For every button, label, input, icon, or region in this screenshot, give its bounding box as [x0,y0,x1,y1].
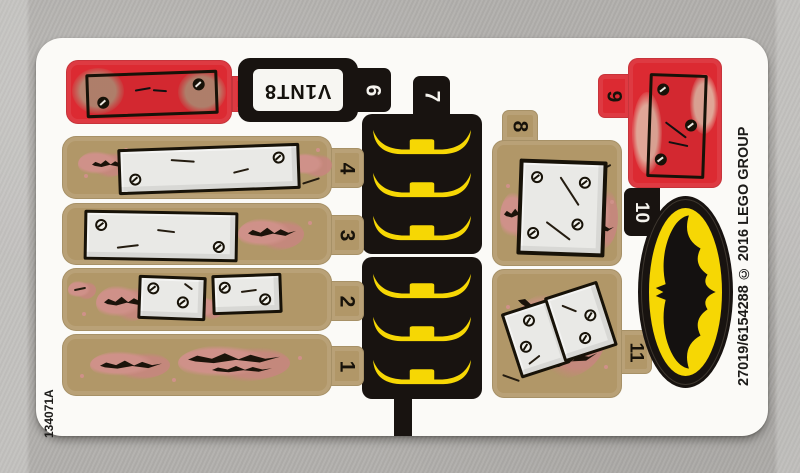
sticker-6: V1NT8 [238,58,358,122]
screw-icon [655,153,667,165]
sticker-9-number-tab: 9 [598,74,630,118]
wood-plank [137,275,206,321]
sticker-4 [62,136,332,199]
wood-plank-group [500,281,616,377]
wood-plank [84,210,239,263]
screw-icon [95,219,107,231]
sticker-5 [66,60,232,124]
crack-line [546,221,571,241]
crack-line [559,176,579,206]
screw-icon [571,218,583,230]
sticker-7-lower-panel [362,257,482,399]
screw-icon [147,282,159,294]
crack-line [668,141,688,147]
crack-line [665,121,687,138]
sticker-11 [492,269,622,398]
bat-rail-icon [371,315,473,343]
sticker-7-stem [394,397,412,436]
sticker-8-number-tab: 8 [502,110,538,142]
sticker-2 [62,268,332,331]
screw-icon [192,78,204,90]
screw-icon [685,119,697,131]
bat-rail-icon [371,358,473,386]
screw-icon [177,296,189,308]
bat-rail-icon [371,128,473,156]
wood-plank [85,70,218,119]
screw-icon [518,339,533,354]
wood-plank [211,273,282,315]
bat-rail-icon [371,171,473,199]
crack-line [171,159,195,163]
wood-plank [117,143,300,195]
claw-mark [502,374,520,382]
wood-plank [516,158,607,257]
sticker-number: 11 [627,342,646,362]
sticker-9 [628,58,722,188]
crack-line [184,283,193,291]
sticker-number: 6 [363,84,384,96]
sticker-2-number-tab: 2 [330,281,364,321]
screw-icon [97,97,109,109]
sticker-number: 8 [510,120,531,132]
sticker-6-number-tab: 6 [355,68,391,112]
sticker-number: 4 [337,162,358,174]
bat-rail-icon [371,272,473,300]
sticker-7-number-tab: 7 [413,76,450,116]
scanned-sticker-sheet-photo: 134071A 27019/6154288 © 2016 LEGO GROUP … [0,0,800,473]
crack-line [241,289,257,293]
sticker-3-number-tab: 3 [330,215,364,255]
screw-icon [213,241,225,253]
screw-icon [259,293,271,305]
license-plate-text: V1NT8 [264,79,331,102]
license-plate: V1NT8 [253,69,343,111]
screw-icon [583,308,598,323]
screw-icon [578,331,593,346]
crack-line [561,305,577,313]
sticker-number: 10 [632,201,651,222]
sticker-number: 9 [604,90,625,102]
sticker-1 [62,334,332,396]
sticker-1-number-tab: 1 [330,346,364,386]
sticker-sheet: 134071A 27019/6154288 © 2016 LEGO GROUP … [36,38,768,436]
screw-icon [219,282,231,294]
scratch-decal [178,344,290,382]
sticker-3 [62,203,332,265]
wood-plank [646,73,708,179]
screw-icon [657,83,669,95]
bat-symbol-icon [654,213,718,371]
screw-icon [527,227,539,239]
screw-icon [129,173,141,185]
sticker-8 [492,140,622,266]
sticker-number: 1 [337,360,358,372]
sticker-number: 7 [421,90,442,102]
crack-line [117,244,139,249]
copyright-notice: 27019/6154288 © 2016 LEGO GROUP [736,52,752,386]
scratch-decal [68,280,96,300]
crack-line [157,229,175,233]
screw-icon [579,177,591,189]
crack-line [528,355,540,365]
crack-line [153,89,167,92]
screw-icon [272,151,284,163]
crack-line [233,168,249,174]
bat-rail-icon [371,214,473,242]
claw-mark [302,177,320,184]
sticker-7-upper-panel [362,114,482,254]
screw-icon [531,171,543,183]
crack-line [135,87,151,92]
screw-icon [521,313,536,328]
sticker-4-number-tab: 4 [330,148,364,188]
sticker-number: 2 [337,295,358,307]
batman-logo-sticker [638,196,733,388]
sticker-number: 3 [337,229,358,241]
batman-logo-yellow-oval [649,208,722,376]
sheet-code: 134071A [42,322,56,438]
